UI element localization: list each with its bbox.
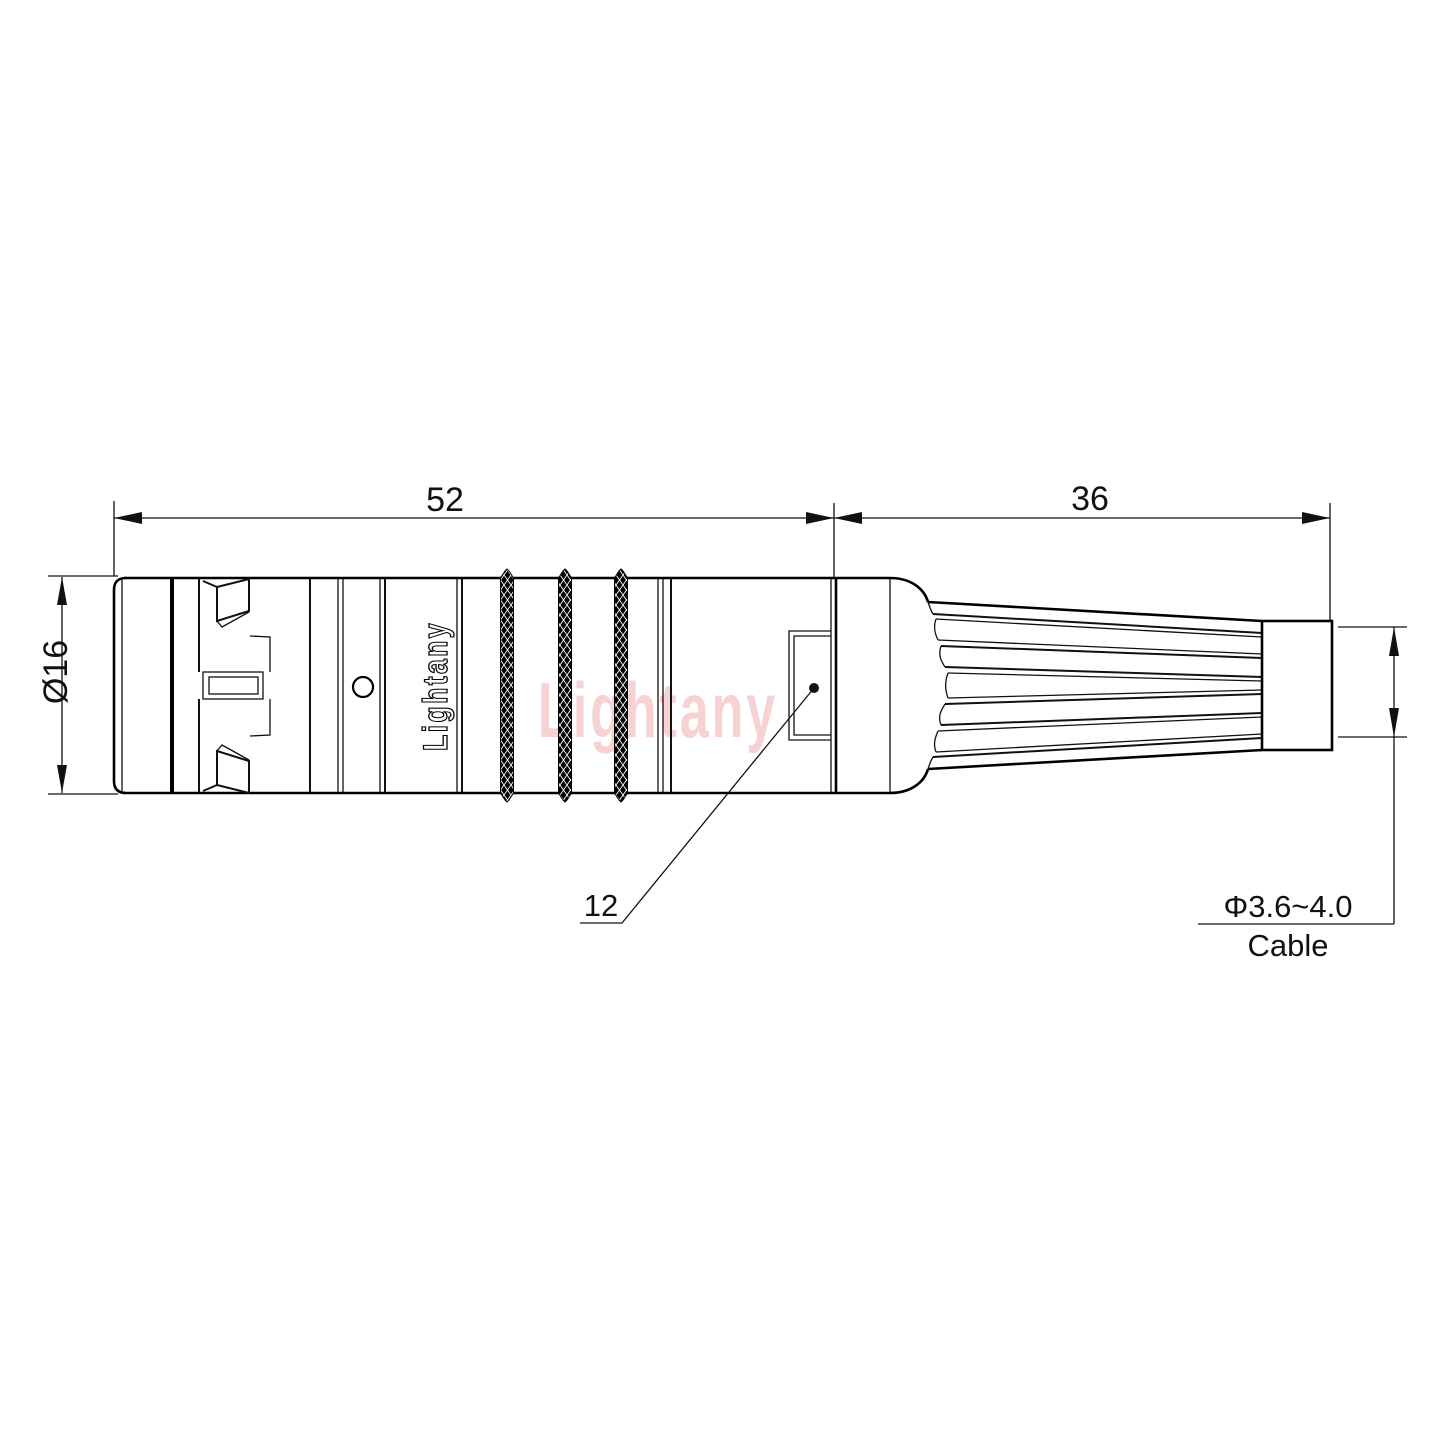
dim-12-label: 12 [584,888,618,923]
cable-end-cap [1262,621,1332,750]
upper-latch-cutout [203,579,270,672]
sleeve-hole [353,677,373,697]
dim-52-label: 52 [426,481,464,519]
arrowhead [806,512,834,524]
drawing-canvas: Lightany [0,0,1440,1440]
dim-36-label: 36 [1071,480,1109,518]
dimension-36: 36 [834,480,1330,620]
arrowhead [57,765,67,793]
lower-latch-cutout [203,699,270,793]
diameter-16-label: Ø16 [37,640,75,704]
knurl-band-3 [615,569,628,802]
dimension-diameter-16: Ø16 [37,576,118,794]
body-brand-text: Lightany [417,621,455,751]
arrowhead [1389,627,1399,656]
technical-drawing-svg: Lightany [0,0,1440,1440]
cable-diameter-label: Φ3.6~4.0 [1223,889,1352,924]
arrowhead [1389,708,1399,737]
center-slot [203,672,263,699]
knurl-band-2 [559,569,572,802]
arrowhead [57,577,67,605]
knurl-band-1 [501,569,514,802]
arrowhead [834,512,862,524]
dimension-52: 52 [114,481,834,578]
cable-label: Cable [1248,928,1329,963]
arrowhead [114,512,142,524]
arrowhead [1302,512,1330,524]
strain-relief-boot [890,578,1332,793]
